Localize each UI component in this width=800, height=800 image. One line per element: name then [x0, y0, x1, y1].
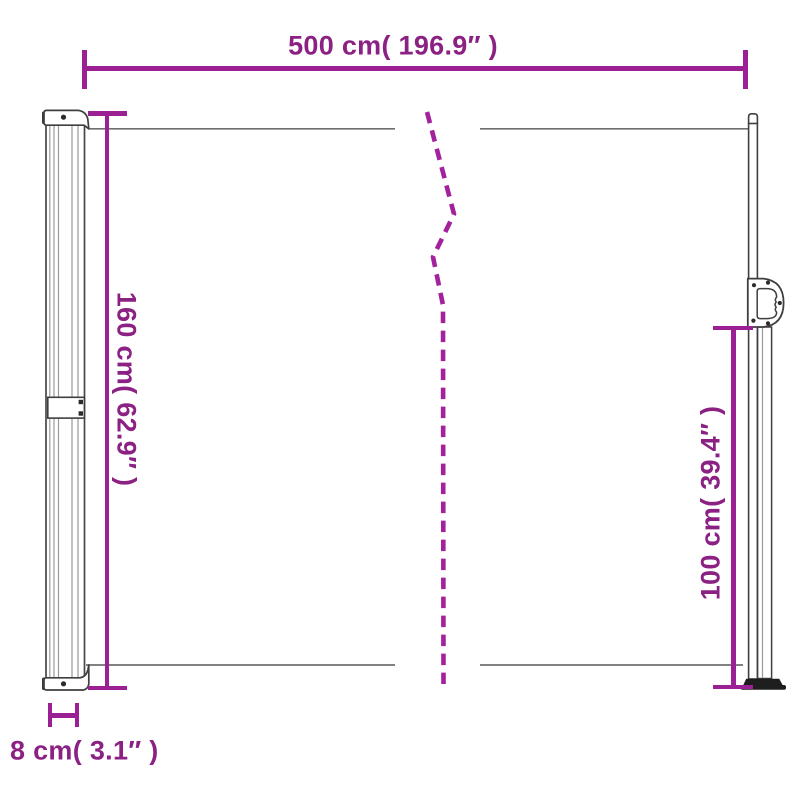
handle-grip-cutout: [757, 289, 776, 319]
dimension-width-tick-left: [82, 50, 87, 89]
dimension-right-height-label: 100 cm( 39.4″ ): [698, 406, 725, 601]
dimension-right-height-line: [731, 326, 736, 688]
dimension-width-label: 500 cm( 196.9″ ): [288, 33, 498, 60]
top-cap: [44, 110, 89, 128]
dimension-depth-tick-right: [75, 703, 80, 727]
product-dimension-image: 500 cm( 196.9″ ) 160 cm( 62.9″ ) 100 cm(…: [0, 0, 800, 800]
rivet-top: [61, 115, 66, 120]
fabric-edge-lines: [86, 129, 748, 665]
pole: [749, 124, 758, 680]
pole-top-cap: [749, 114, 758, 124]
dimension-left-height-line: [105, 112, 110, 689]
break-line: [427, 112, 454, 684]
dimension-width-line: [84, 66, 745, 71]
pull-bar-profile: [758, 327, 772, 679]
dimension-depth-tick-left: [48, 703, 53, 727]
left-cassette-post: [42, 110, 89, 690]
dimension-left-height-tick-bottom: [88, 686, 127, 691]
dimension-left-height-label: 160 cm( 62.9″ ): [113, 292, 140, 487]
dimension-width-tick-right: [743, 50, 748, 89]
rivet-bottom: [61, 681, 66, 686]
dimension-left-height-tick-top: [88, 111, 127, 116]
bottom-cap: [44, 665, 89, 690]
dimension-right-height-tick-bottom: [713, 685, 753, 690]
dimension-right-height-tick-top: [713, 326, 753, 331]
dimension-depth-line: [49, 713, 77, 718]
right-pull-pole: [741, 114, 787, 690]
dimension-depth-label: 8 cm( 3.1″ ): [10, 738, 159, 765]
